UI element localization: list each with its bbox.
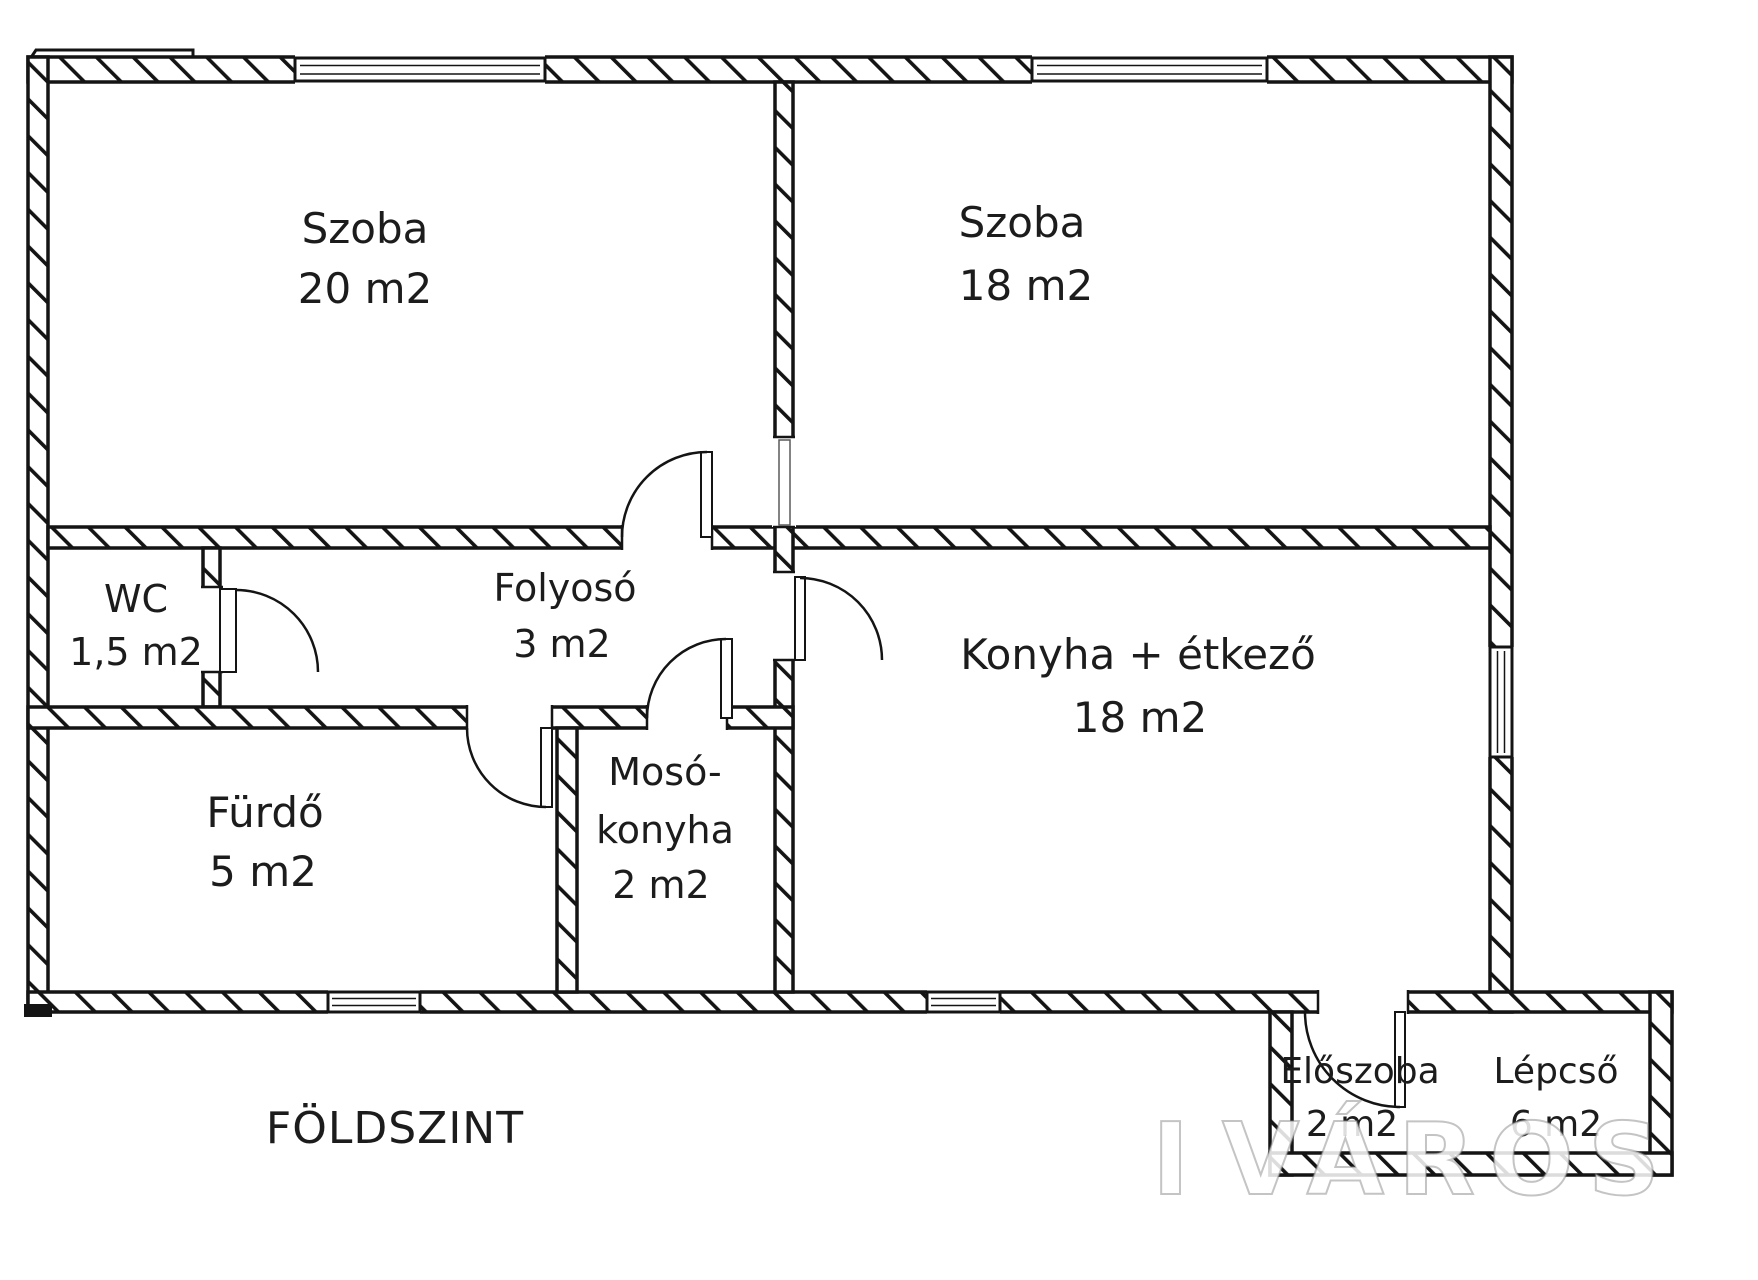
window-frame <box>328 992 420 1012</box>
door-gap <box>772 572 796 660</box>
wc-area: 1,5 m2 <box>69 630 203 674</box>
door-gap <box>622 523 712 552</box>
wall-outer-left <box>28 57 48 1012</box>
wall-room-divider-vertical <box>775 82 793 992</box>
window-frame <box>1032 58 1267 81</box>
opening-szoba-szoba <box>772 437 796 527</box>
folyoso-name: Folyosó <box>493 566 636 610</box>
watermark-text: VÁROS <box>1222 1101 1674 1218</box>
szoba18-name: Szoba <box>959 198 1086 247</box>
window-frame <box>1490 647 1512 757</box>
door-leaf <box>701 452 712 537</box>
mosokonyha-area: 2 m2 <box>612 863 709 907</box>
szoba18-area: 18 m2 <box>959 261 1093 310</box>
door-leaf <box>220 589 236 672</box>
mosokonyha-name-line1: Mosó- <box>608 750 722 794</box>
konyha-area: 18 m2 <box>1073 693 1207 742</box>
window-right-konyha <box>1487 647 1515 757</box>
wall-interior-horizontal <box>48 527 1490 548</box>
furdo-name: Fürdő <box>206 788 323 837</box>
wall-outer-top <box>28 57 1512 82</box>
watermark: I VÁROS <box>1152 1101 1674 1218</box>
wall-laundry-left <box>557 728 577 992</box>
window-frame <box>295 58 545 81</box>
wall-outer-bottom <box>28 992 1672 1012</box>
floor-plan-svg: Szoba 20 m2 Szoba 18 m2 WC 1,5 m2 Folyos… <box>0 0 1758 1280</box>
furdo-area: 5 m2 <box>209 847 317 896</box>
folyoso-area: 3 m2 <box>513 622 610 666</box>
door-leaf <box>721 639 732 718</box>
floor-title: FÖLDSZINT <box>266 1102 524 1154</box>
door-gap <box>467 704 552 731</box>
door-leaf <box>795 577 805 660</box>
szoba20-area: 20 m2 <box>298 264 432 313</box>
bottom-left-corner-detail <box>24 1004 52 1017</box>
eloszoba-name: Előszoba <box>1280 1051 1439 1092</box>
wc-name: WC <box>104 577 168 621</box>
window-frame <box>927 992 1000 1012</box>
lepcso-name: Lépcső <box>1494 1051 1619 1092</box>
watermark-fragment: I <box>1152 1101 1193 1218</box>
konyha-name: Konyha + étkező <box>960 630 1316 679</box>
mosokonyha-name-line2: konyha <box>596 808 734 852</box>
door-leaf <box>541 728 552 807</box>
window-top-szoba20 <box>295 54 545 84</box>
floor-plan-page: Szoba 20 m2 Szoba 18 m2 WC 1,5 m2 Folyos… <box>0 0 1758 1280</box>
szoba20-name: Szoba <box>302 204 429 253</box>
window-top-szoba18 <box>1032 54 1267 84</box>
window-bottom-konyha <box>927 989 1000 1015</box>
door-leaf-closed <box>779 440 790 525</box>
wall-outer-right <box>1490 57 1512 1012</box>
door-gap <box>647 704 727 731</box>
window-bottom-furdo <box>328 989 420 1015</box>
